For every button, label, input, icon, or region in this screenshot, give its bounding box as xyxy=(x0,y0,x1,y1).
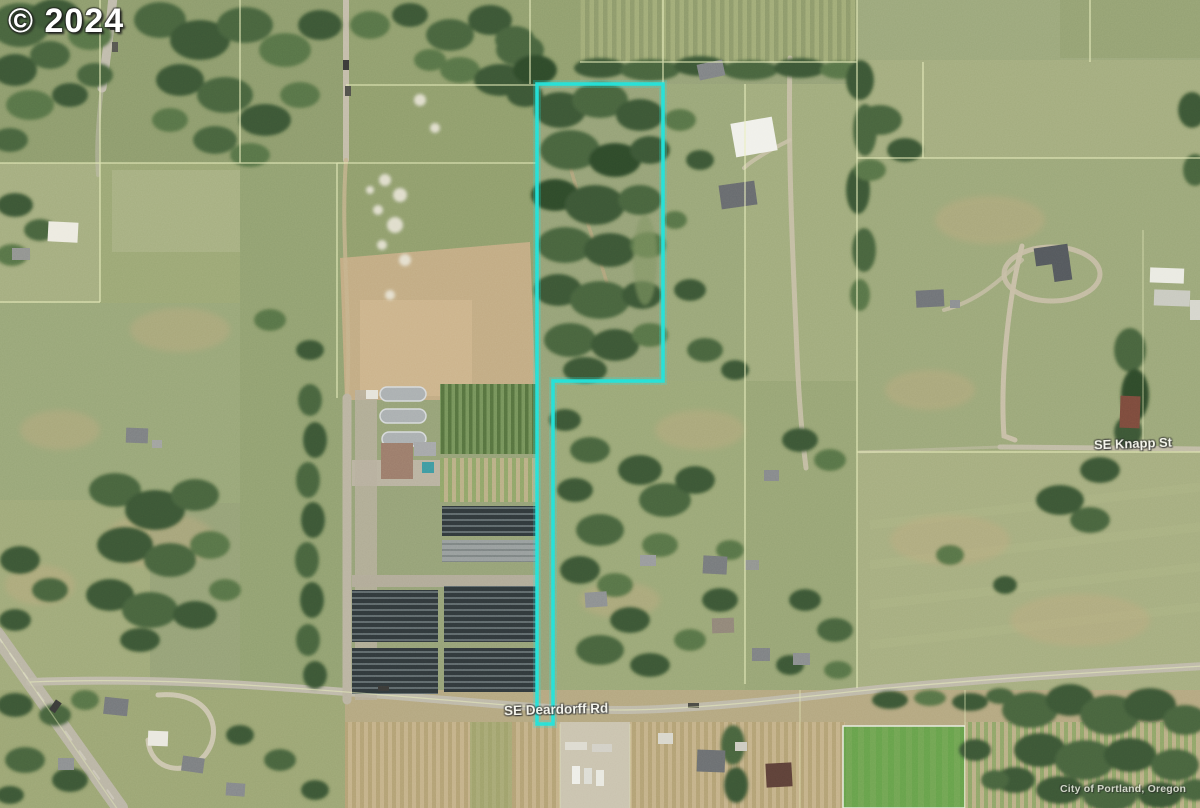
aerial-photo xyxy=(0,0,1200,808)
aerial-parcel-map: © 2024 SE Knapp St SE Deardorff Rd City … xyxy=(0,0,1200,808)
photo-grain xyxy=(0,0,1200,808)
